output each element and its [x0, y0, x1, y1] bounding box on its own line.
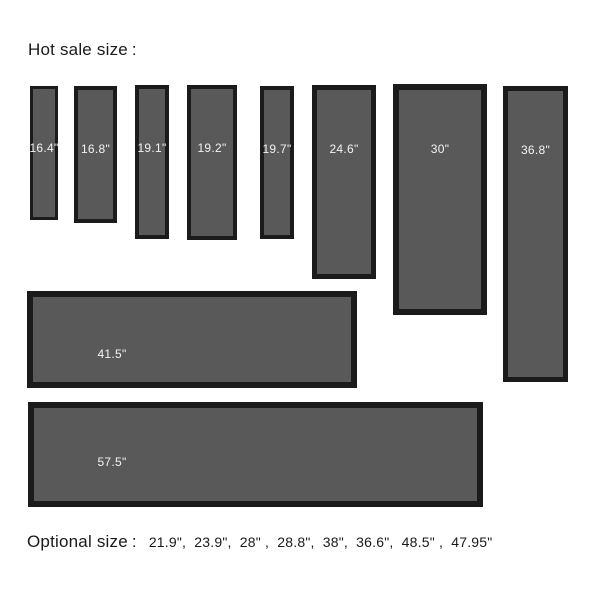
size-label: 36.8": [521, 143, 550, 157]
size-label: 19.2": [197, 141, 226, 155]
page-title: Hot sale size:: [28, 40, 137, 60]
optional-size-title: Optional size:: [27, 532, 137, 552]
size-label: 19.1": [137, 141, 166, 155]
optional-size-list: 21.9", 23.9", 28" , 28.8", 38", 36.6", 4…: [149, 534, 493, 550]
page-title-text: Hot sale size: [28, 40, 128, 59]
optional-size-colon: :: [132, 532, 137, 551]
size-panel-36-8-in: 36.8": [503, 86, 568, 382]
size-label: 16.4": [29, 141, 58, 155]
size-panel-16-8-in: 16.8": [74, 86, 117, 223]
optional-size-line: Optional size: 21.9", 23.9", 28" , 28.8"…: [27, 532, 492, 552]
size-chart: Hot sale size: 16.4" 16.8" 19.1" 19.2" 1…: [0, 0, 600, 600]
size-label: 16.8": [81, 142, 110, 156]
size-panel-19-7-in: 19.7": [260, 86, 294, 239]
size-label: 19.7": [262, 142, 291, 156]
size-panel-57-5-in: 57.5": [28, 402, 483, 507]
size-panel-30-in: 30": [393, 84, 487, 315]
size-label: 30": [431, 142, 450, 156]
optional-size-title-text: Optional size: [27, 532, 128, 551]
size-label: 24.6": [329, 142, 358, 156]
size-panel-41-5-in: 41.5": [27, 291, 357, 388]
size-panel-19-1-in: 19.1": [135, 85, 169, 239]
size-panel-19-2-in: 19.2": [187, 85, 237, 240]
size-label: 57.5": [97, 455, 126, 469]
page-title-colon: :: [132, 40, 137, 59]
size-panel-24-6-in: 24.6": [312, 85, 376, 279]
size-panel-16-4-in: 16.4": [30, 86, 58, 220]
size-label: 41.5": [97, 347, 126, 361]
